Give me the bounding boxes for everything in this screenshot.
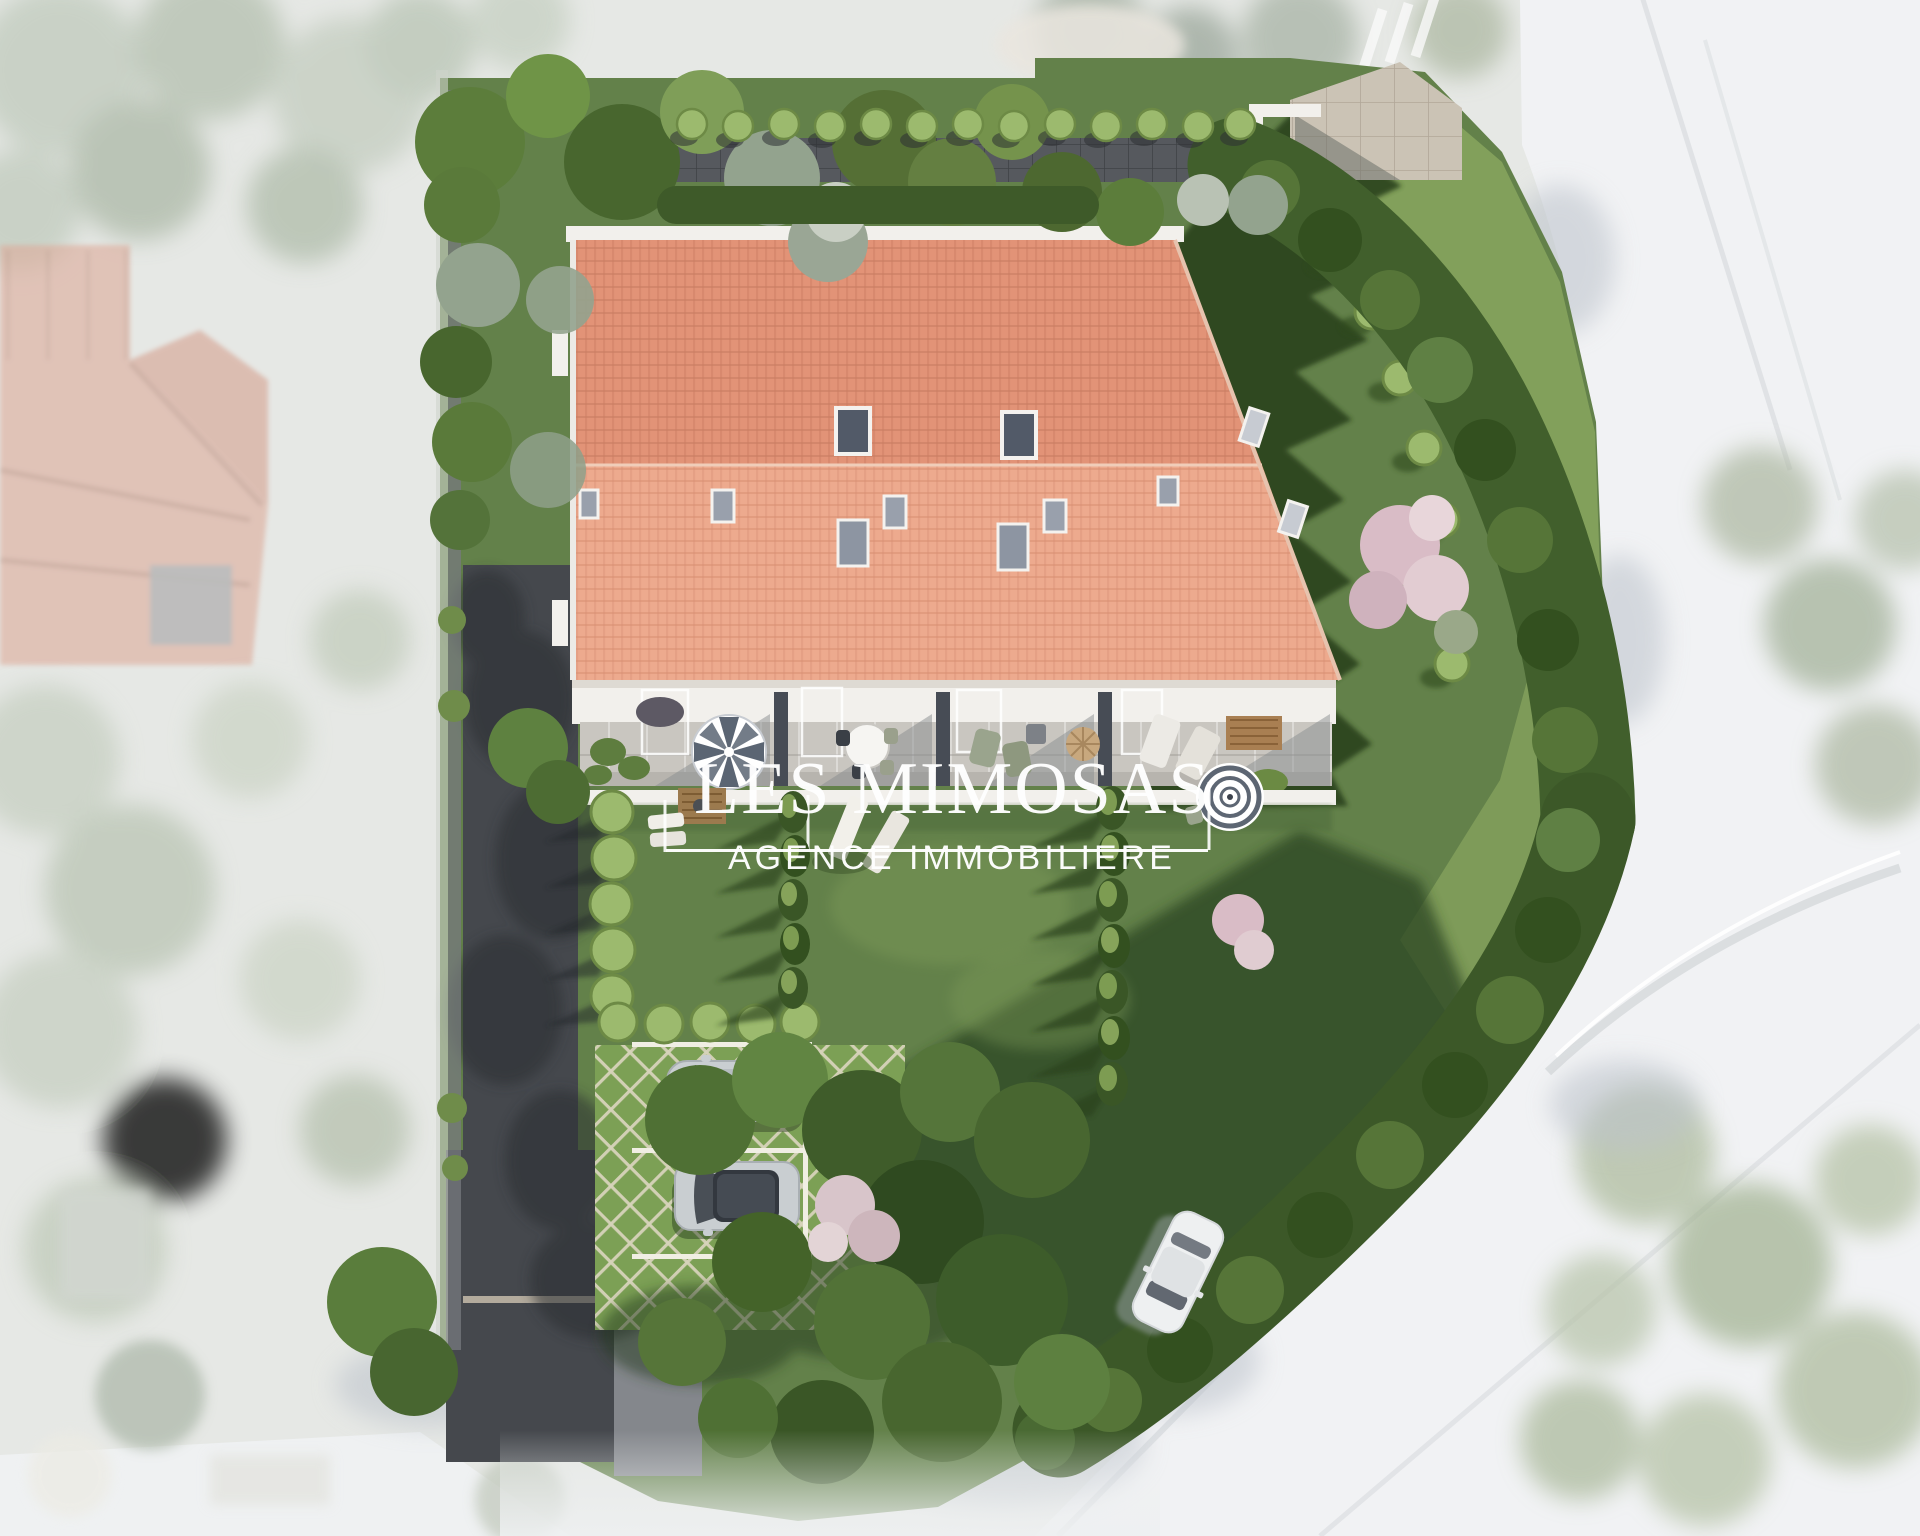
bottom-fade bbox=[500, 1430, 1160, 1536]
garden-parasol bbox=[1196, 763, 1264, 831]
blossom-gray-tree bbox=[1177, 174, 1229, 226]
roof-south-slope bbox=[576, 465, 1340, 680]
gray-tree bbox=[1228, 175, 1288, 235]
aerial-site-render: LES MIMOSAS AGENCE IMMOBILIERE bbox=[0, 0, 1920, 1536]
roof-north-slope bbox=[576, 240, 1262, 465]
scene-canvas bbox=[0, 0, 1920, 1536]
rattan-parasol bbox=[1066, 727, 1100, 761]
roof-cap bbox=[566, 226, 1184, 242]
